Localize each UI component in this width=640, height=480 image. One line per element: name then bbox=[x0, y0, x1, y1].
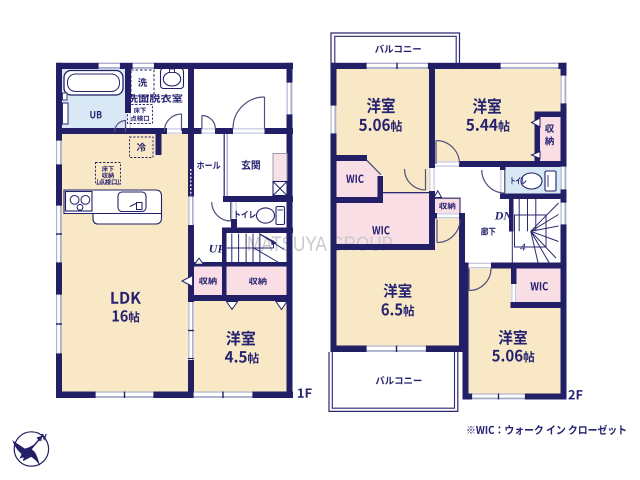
svg-text:N: N bbox=[39, 433, 48, 443]
svg-text:UP: UP bbox=[209, 241, 226, 255]
svg-text:DN: DN bbox=[494, 209, 514, 223]
svg-text:4: 4 bbox=[520, 241, 526, 253]
